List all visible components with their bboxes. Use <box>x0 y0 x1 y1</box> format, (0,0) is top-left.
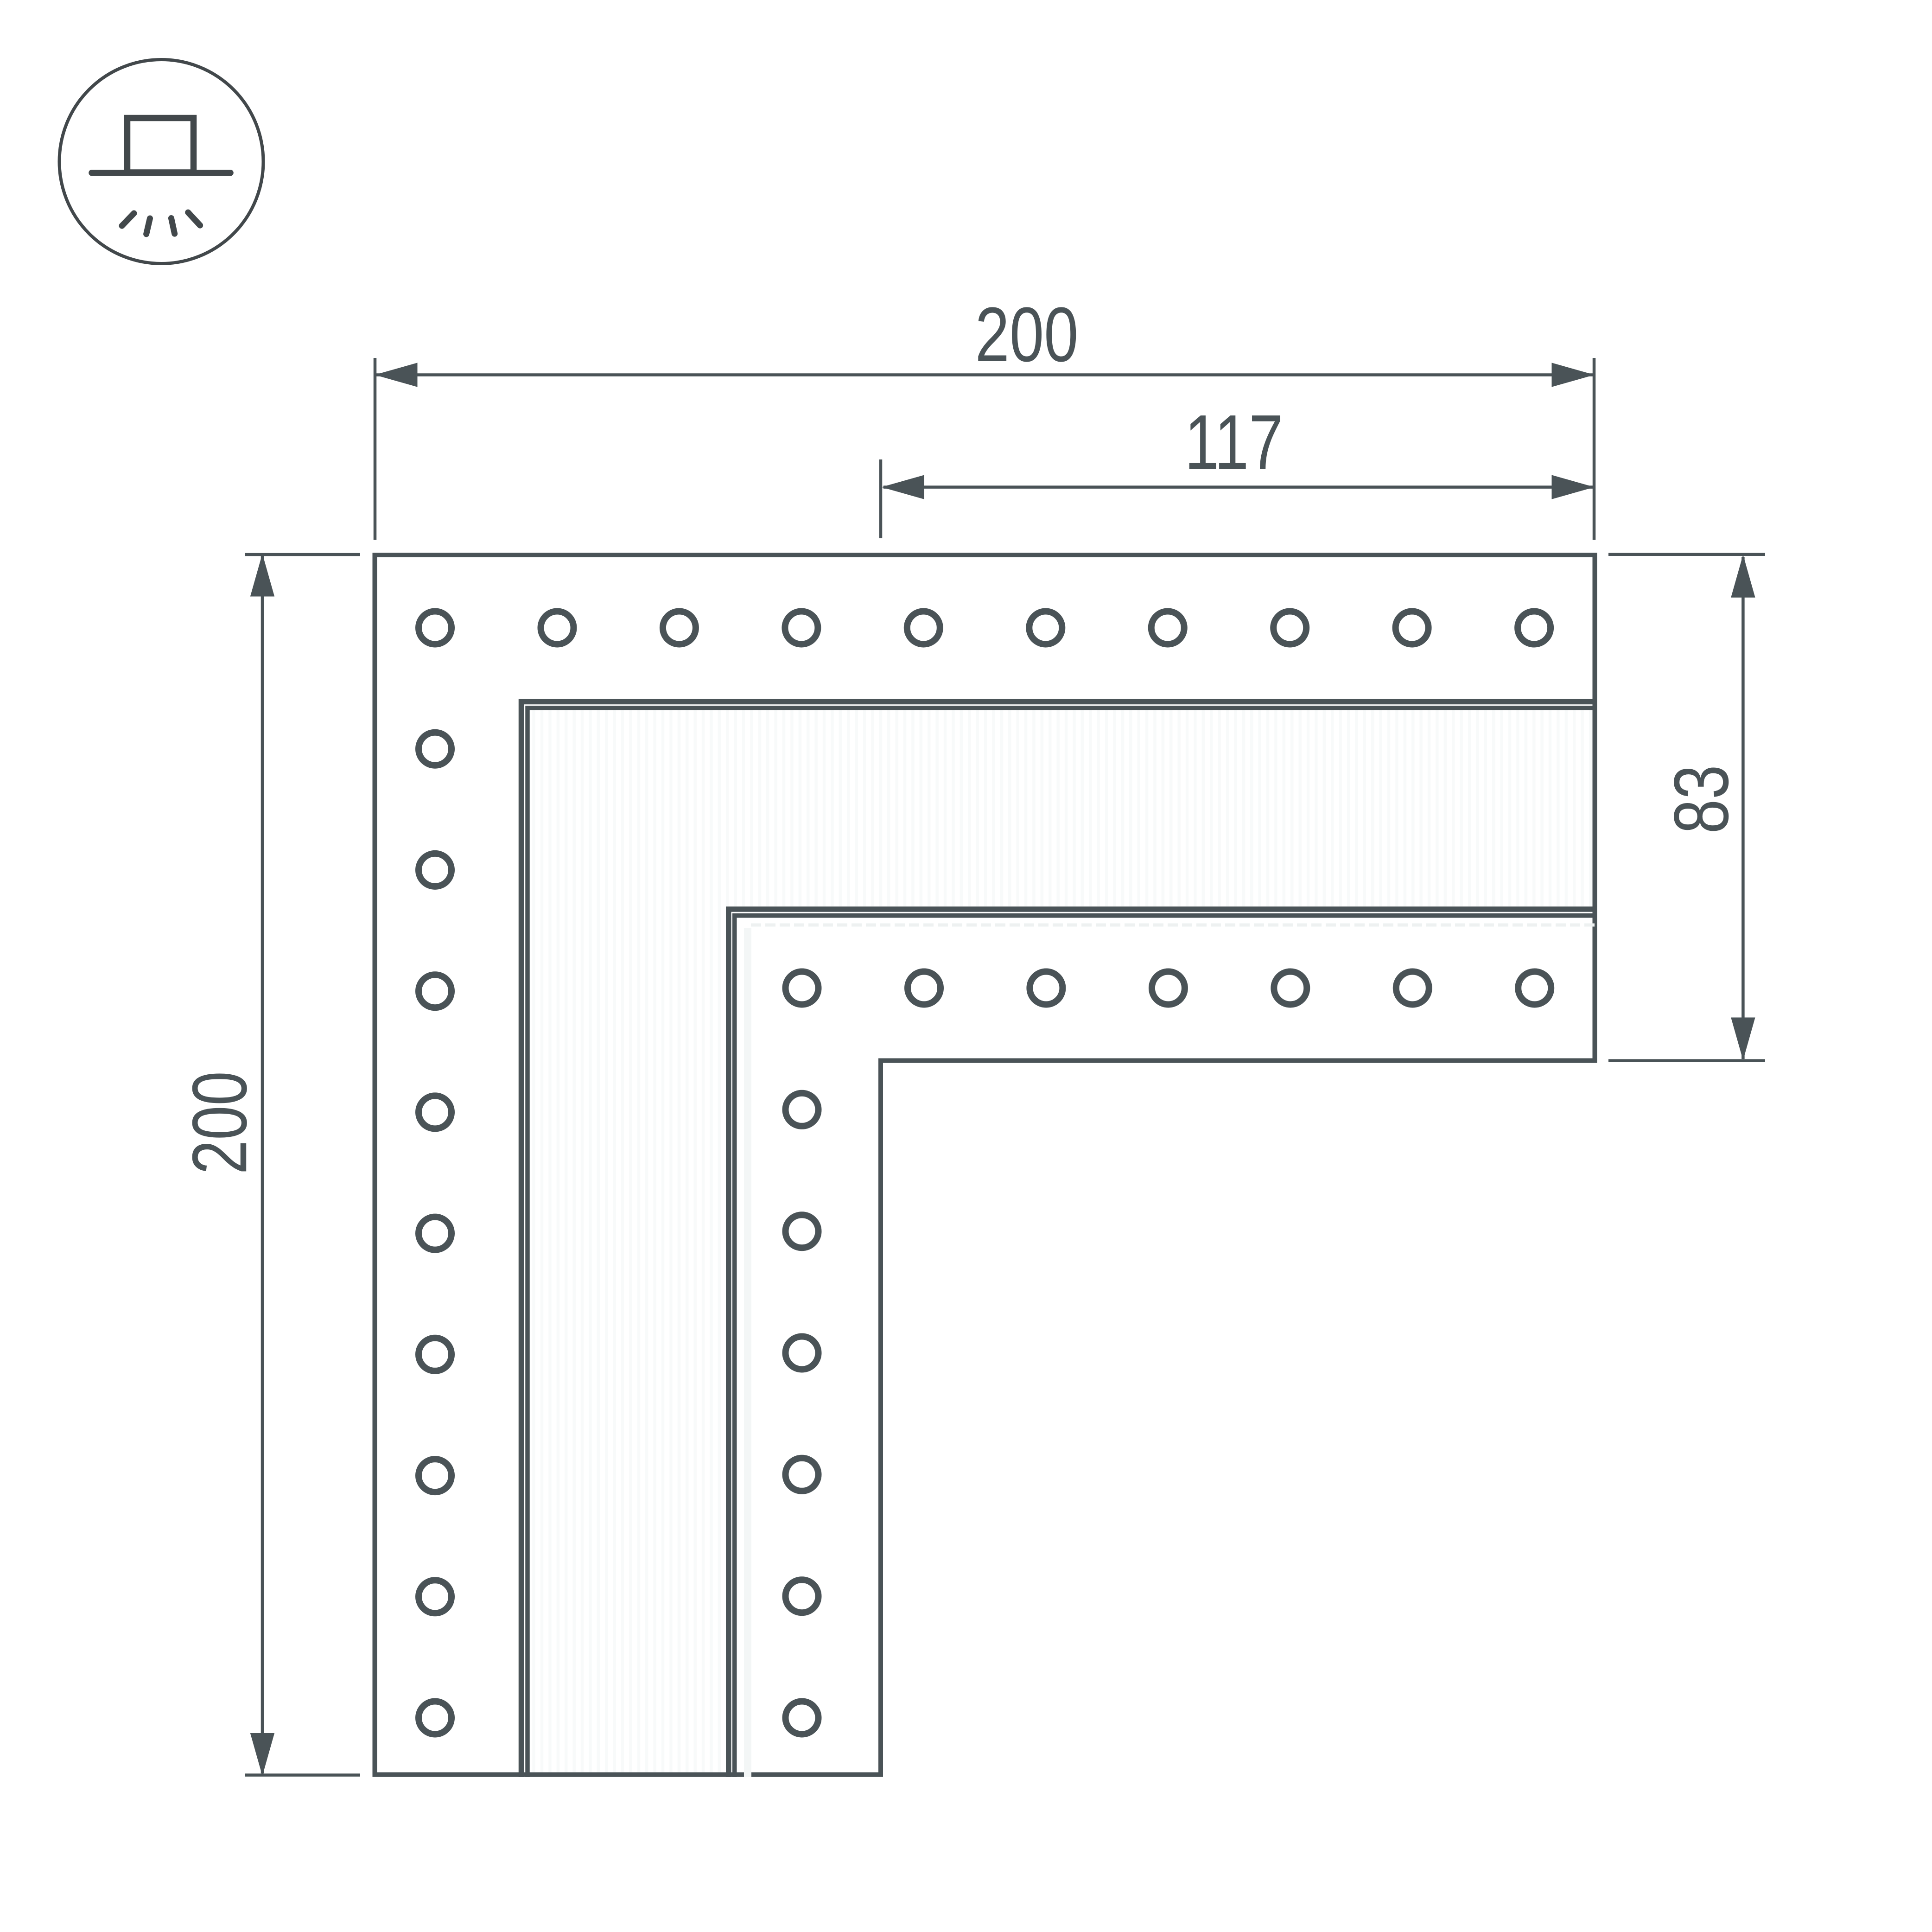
svg-text:200: 200 <box>177 1071 263 1174</box>
svg-text:117: 117 <box>1185 399 1284 486</box>
svg-text:200: 200 <box>975 292 1079 378</box>
svg-text:83: 83 <box>1659 765 1745 834</box>
